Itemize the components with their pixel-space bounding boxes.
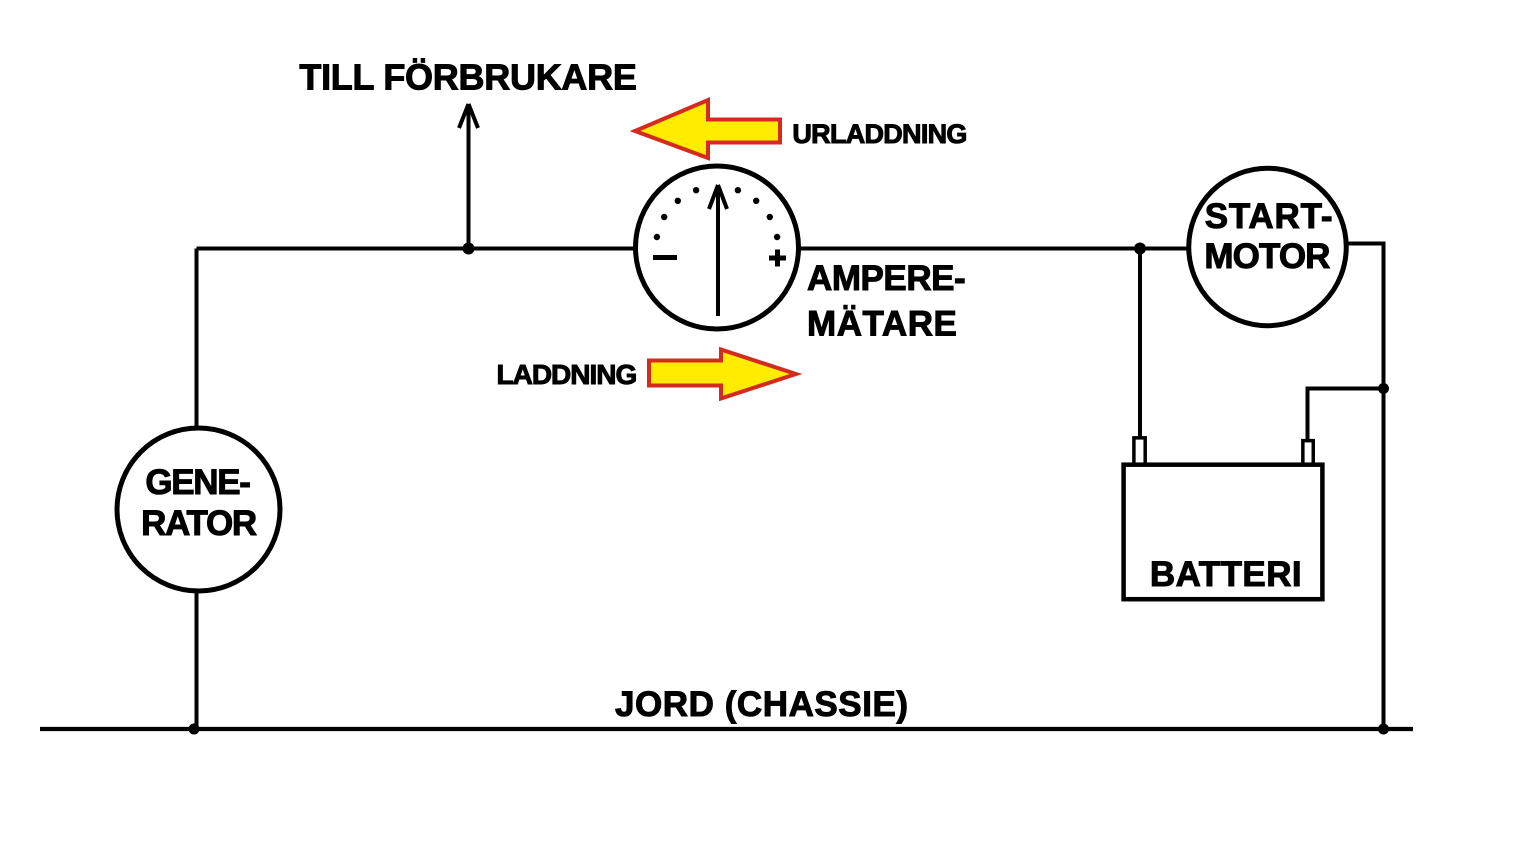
svg-text:JORD (CHASSIE): JORD (CHASSIE)	[615, 685, 909, 724]
svg-text:START-: START-	[1205, 197, 1334, 236]
svg-text:TILL FÖRBRUKARE: TILL FÖRBRUKARE	[299, 57, 636, 98]
svg-text:AMPERE-: AMPERE-	[807, 259, 965, 298]
svg-text:GENE-: GENE-	[145, 463, 250, 502]
svg-text:MOTOR: MOTOR	[1204, 237, 1330, 276]
svg-text:URLADDNING: URLADDNING	[792, 119, 966, 149]
svg-text:LADDNING: LADDNING	[497, 359, 637, 390]
svg-text:BATTERI: BATTERI	[1150, 555, 1302, 594]
svg-text:RATOR: RATOR	[141, 504, 257, 543]
svg-text:MÄTARE: MÄTARE	[807, 305, 957, 344]
